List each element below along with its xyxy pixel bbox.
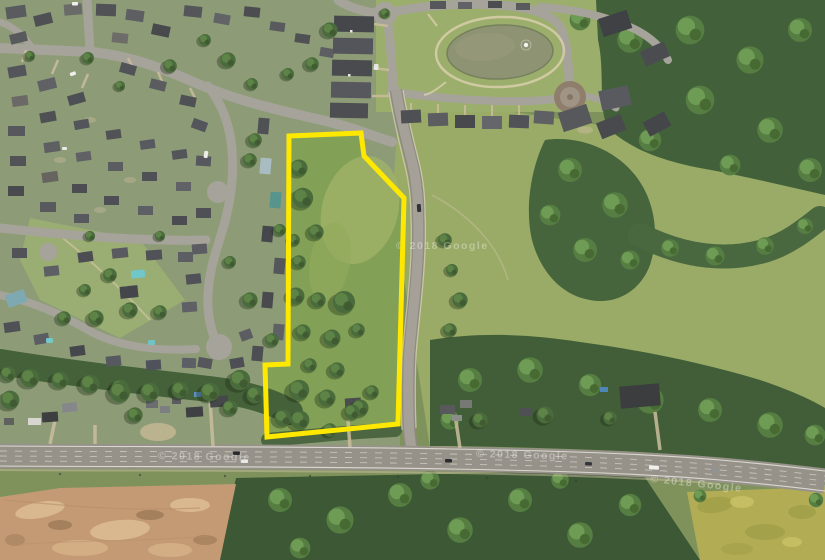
blue-tarp [600,387,608,392]
aerial-image: © 2018 Google © 2018 Google © 2018 Googl… [0,0,825,560]
dirt-field [0,484,236,560]
watermark-text: © 2018 Google [158,450,251,464]
pond-fountain [524,43,528,47]
watermark-text: © 2018 Google [396,240,489,252]
yellow-field [687,487,825,560]
forest-below-highway [218,470,700,560]
aerial-screenshot: © 2018 Google © 2018 Google © 2018 Googl… [0,0,825,560]
roundabout [373,2,397,26]
watermark-text: © 2018 Google [476,448,569,462]
